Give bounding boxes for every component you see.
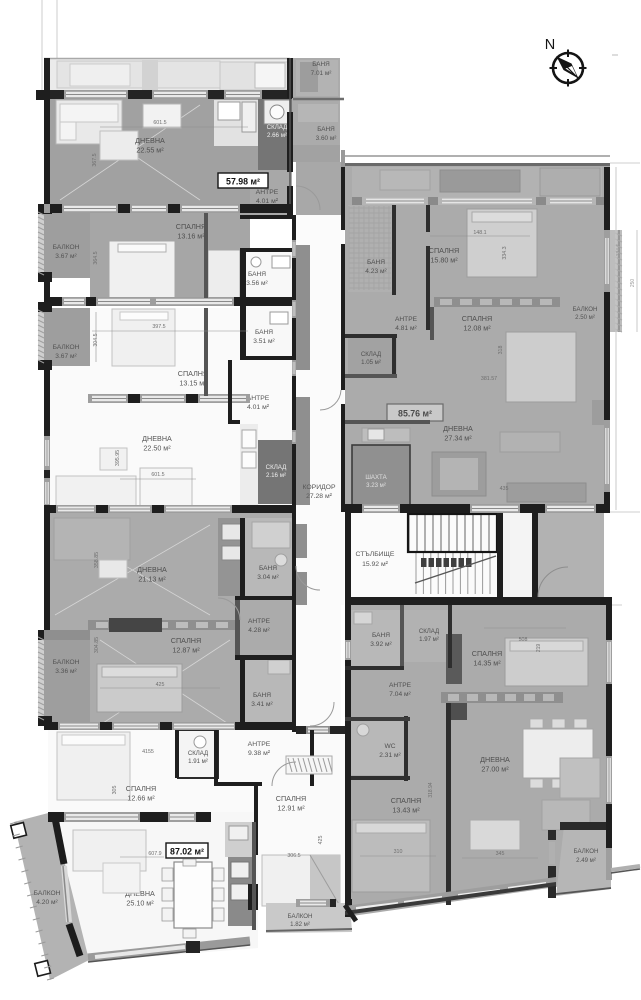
svg-text:22.55 м²: 22.55 м² <box>136 146 164 155</box>
svg-text:425: 425 <box>156 682 165 688</box>
svg-text:27.34 м²: 27.34 м² <box>444 434 472 443</box>
svg-text:7.04 м²: 7.04 м² <box>389 691 411 698</box>
svg-text:СКЛАД: СКЛАД <box>419 628 440 635</box>
svg-text:57.98 м²: 57.98 м² <box>226 176 260 186</box>
svg-text:87.02 м²: 87.02 м² <box>170 847 204 857</box>
svg-text:БАЛКОН: БАЛКОН <box>574 848 599 855</box>
svg-text:СПАЛНЯ: СПАЛНЯ <box>276 794 306 803</box>
svg-text:85.76 м²: 85.76 м² <box>398 409 432 419</box>
svg-text:N: N <box>545 37 555 53</box>
svg-text:425: 425 <box>318 836 324 845</box>
svg-text:13.15 м²: 13.15 м² <box>179 379 207 388</box>
svg-text:27.00 м²: 27.00 м² <box>481 765 509 774</box>
svg-text:АНТРЕ: АНТРЕ <box>395 316 418 323</box>
svg-text:27.28 м²: 27.28 м² <box>306 493 333 500</box>
svg-text:304.85: 304.85 <box>94 637 100 653</box>
svg-text:БАНЯ: БАНЯ <box>259 565 277 572</box>
svg-text:4.81 м²: 4.81 м² <box>395 325 417 332</box>
svg-text:СПАЛНЯ: СПАЛНЯ <box>178 369 208 378</box>
svg-text:397.5: 397.5 <box>152 324 165 330</box>
svg-text:250: 250 <box>630 279 636 288</box>
svg-text:2.66 м²: 2.66 м² <box>267 132 287 139</box>
svg-text:АНТРЕ: АНТРЕ <box>248 618 271 625</box>
svg-text:БАНЯ: БАНЯ <box>255 329 273 336</box>
svg-text:305: 305 <box>112 786 118 795</box>
svg-text:601.5: 601.5 <box>153 120 166 126</box>
svg-text:148.1: 148.1 <box>473 230 486 236</box>
svg-text:3.04 м²: 3.04 м² <box>257 574 279 581</box>
svg-text:СКЛАД: СКЛАД <box>188 750 209 757</box>
svg-text:БАНЯ: БАНЯ <box>312 61 330 68</box>
svg-text:381.57: 381.57 <box>481 376 497 382</box>
svg-text:ДНЕВНА: ДНЕВНА <box>443 424 473 433</box>
svg-text:ДНЕВНА: ДНЕВНА <box>142 434 172 443</box>
svg-text:219: 219 <box>536 644 542 653</box>
svg-text:7.01 м²: 7.01 м² <box>311 70 332 77</box>
svg-text:21.13 м²: 21.13 м² <box>138 575 166 584</box>
svg-text:ДНЕВНА: ДНЕВНА <box>137 565 167 574</box>
svg-text:2.31 м²: 2.31 м² <box>379 752 401 759</box>
svg-text:306.5: 306.5 <box>287 853 300 859</box>
svg-text:1.91 м²: 1.91 м² <box>188 758 208 765</box>
svg-text:WC: WC <box>385 743 396 750</box>
svg-text:12.91 м²: 12.91 м² <box>277 804 305 813</box>
svg-text:14.35 м²: 14.35 м² <box>473 659 501 668</box>
svg-text:БАЛКОН: БАЛКОН <box>53 244 80 251</box>
svg-text:БАЛКОН: БАЛКОН <box>34 890 61 897</box>
svg-text:БАЛКОН: БАЛКОН <box>288 913 313 920</box>
svg-text:АНТРЕ: АНТРЕ <box>389 682 412 689</box>
svg-text:4.20 м²: 4.20 м² <box>36 899 58 906</box>
svg-text:4.01 м²: 4.01 м² <box>256 198 279 205</box>
svg-text:ДНЕВНА: ДНЕВНА <box>480 755 510 764</box>
svg-text:СПАЛНЯ: СПАЛНЯ <box>429 246 459 255</box>
svg-text:364.5: 364.5 <box>93 251 99 264</box>
svg-text:3.41 м²: 3.41 м² <box>251 701 273 708</box>
svg-text:22.50 м²: 22.50 м² <box>143 444 171 453</box>
svg-text:435: 435 <box>500 486 509 492</box>
svg-text:АНТРЕ: АНТРЕ <box>247 395 270 402</box>
svg-text:4.23 м²: 4.23 м² <box>365 268 387 275</box>
svg-text:601.5: 601.5 <box>151 472 164 478</box>
svg-text:СПАЛНЯ: СПАЛНЯ <box>171 636 201 645</box>
svg-text:25.10 м²: 25.10 м² <box>126 899 154 908</box>
svg-text:СПАЛНЯ: СПАЛНЯ <box>462 314 492 323</box>
svg-text:15.92 м²: 15.92 м² <box>362 561 389 568</box>
svg-text:БАНЯ: БАНЯ <box>248 271 266 278</box>
svg-text:СПАЛНЯ: СПАЛНЯ <box>126 784 156 793</box>
svg-text:4.28 м²: 4.28 м² <box>248 627 270 634</box>
svg-text:АНТРЕ: АНТРЕ <box>248 741 271 748</box>
svg-text:3.60 м²: 3.60 м² <box>316 135 337 142</box>
svg-text:4.01 м²: 4.01 м² <box>247 404 270 411</box>
svg-text:367.5: 367.5 <box>92 153 98 166</box>
svg-text:15.80 м²: 15.80 м² <box>430 256 458 265</box>
svg-text:3.67 м²: 3.67 м² <box>55 353 77 360</box>
svg-text:334.3: 334.3 <box>502 246 508 259</box>
svg-text:3.92 м²: 3.92 м² <box>370 641 392 648</box>
svg-text:БАНЯ: БАНЯ <box>372 632 390 639</box>
svg-text:БАНЯ: БАНЯ <box>317 126 335 133</box>
svg-text:12.08 м²: 12.08 м² <box>463 324 491 333</box>
svg-text:СКЛАД: СКЛАД <box>267 124 288 131</box>
svg-text:358.85: 358.85 <box>94 552 100 568</box>
svg-text:ДНЕВНА: ДНЕВНА <box>135 136 165 145</box>
svg-text:310: 310 <box>394 849 403 855</box>
svg-text:БАЛКОН: БАЛКОН <box>53 659 80 666</box>
svg-text:3.36 м²: 3.36 м² <box>55 668 77 675</box>
svg-text:345: 345 <box>496 851 505 857</box>
svg-text:ШАХТА: ШАХТА <box>365 474 387 481</box>
svg-text:2.16 м²: 2.16 м² <box>266 472 286 479</box>
svg-text:2.50 м²: 2.50 м² <box>575 314 595 321</box>
svg-text:СПАЛНЯ: СПАЛНЯ <box>472 649 502 658</box>
svg-text:КОРИДОР: КОРИДОР <box>302 484 335 491</box>
svg-text:13.43 м²: 13.43 м² <box>392 806 420 815</box>
svg-text:3.51 м²: 3.51 м² <box>253 338 275 345</box>
svg-text:12.66 м²: 12.66 м² <box>127 794 155 803</box>
svg-text:СТЪЛБИЩЕ: СТЪЛБИЩЕ <box>356 551 395 558</box>
svg-text:4155: 4155 <box>142 749 154 755</box>
svg-text:БАЛКОН: БАЛКОН <box>573 306 598 313</box>
svg-text:508: 508 <box>519 637 528 643</box>
svg-text:БАНЯ: БАНЯ <box>367 259 385 266</box>
svg-text:334.5: 334.5 <box>616 244 622 257</box>
svg-text:318.94: 318.94 <box>428 782 434 798</box>
svg-text:395.95: 395.95 <box>115 450 121 466</box>
svg-text:9.38 м²: 9.38 м² <box>248 750 271 757</box>
svg-text:3.56 м²: 3.56 м² <box>246 280 268 287</box>
svg-text:3.23 м²: 3.23 м² <box>366 482 386 489</box>
svg-text:СКЛАД: СКЛАД <box>361 351 382 358</box>
svg-text:12.87 м²: 12.87 м² <box>172 646 200 655</box>
svg-text:3.67 м²: 3.67 м² <box>55 253 77 260</box>
svg-text:2.49 м²: 2.49 м² <box>576 857 596 864</box>
svg-text:1.97 м²: 1.97 м² <box>419 636 439 643</box>
svg-text:АНТРЕ: АНТРЕ <box>256 189 279 196</box>
svg-text:БАЛКОН: БАЛКОН <box>53 344 80 351</box>
svg-text:СПАЛНЯ: СПАЛНЯ <box>391 796 421 805</box>
svg-text:607.9: 607.9 <box>148 851 161 857</box>
svg-text:БАНЯ: БАНЯ <box>253 692 271 699</box>
svg-text:318: 318 <box>498 346 504 355</box>
svg-text:1.05 м²: 1.05 м² <box>361 359 381 366</box>
svg-text:СПАЛНЯ: СПАЛНЯ <box>176 222 206 231</box>
svg-text:13.16 м²: 13.16 м² <box>177 232 205 241</box>
svg-text:СКЛАД: СКЛАД <box>266 464 287 471</box>
svg-text:1.82 м²: 1.82 м² <box>290 921 310 928</box>
